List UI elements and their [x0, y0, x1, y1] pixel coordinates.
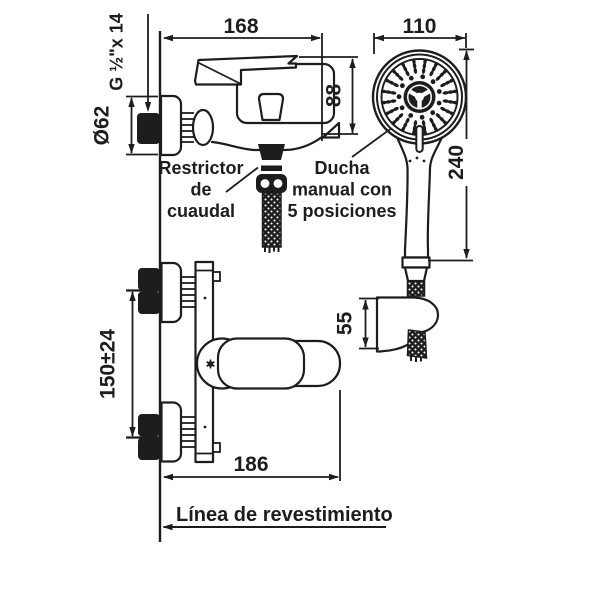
body-tab-top [213, 272, 220, 281]
diverter-knob [259, 94, 283, 120]
dim-110: 110 [374, 15, 466, 54]
dim-110-text: 110 [403, 15, 437, 38]
face-lever-slot [416, 126, 422, 152]
dim-168-text: 168 [223, 15, 258, 38]
connection-bell [193, 110, 213, 145]
mixer-plan-view [138, 262, 340, 462]
center-mode-selector [404, 81, 436, 113]
handle-end-nut [403, 258, 430, 268]
thread-spec-text: G ½"x 14 [107, 13, 127, 91]
restrictor-callout: Restrictor de cuaudal [158, 158, 258, 221]
ducha-line3: 5 posiciones [287, 201, 396, 221]
hose-coupling [408, 281, 425, 296]
dim-150-text: 150±24 [97, 329, 120, 399]
shower-mixer-technical-drawing: 168 110 88 240 Ø62 G ½"x 14 [0, 0, 600, 600]
handle-dot [423, 160, 426, 163]
dim-240-text: 240 [445, 145, 468, 180]
escutcheon-side [161, 96, 181, 155]
dim-88-text: 88 [323, 84, 346, 108]
mixer-side-view [137, 56, 339, 253]
handle-dot [416, 157, 419, 160]
technical-drawing-page: 168 110 88 240 Ø62 G ½"x 14 [0, 0, 600, 600]
shower-handle [396, 135, 443, 258]
cartridge-cap [218, 339, 304, 389]
wall-union-bottom [138, 438, 160, 461]
spout-tip [323, 123, 339, 138]
dim-62-text: Ø62 [91, 106, 114, 146]
wall-union-side [137, 113, 160, 144]
dim-186-text: 186 [233, 453, 268, 476]
wall-line-callout: Línea de revestimiento [163, 504, 393, 530]
restrictor-washer [261, 166, 282, 172]
escutcheon-bottom [162, 403, 182, 462]
wall-union-top [138, 268, 160, 291]
thread-nipple-top [181, 277, 195, 307]
restrictor-line3: cuaudal [167, 201, 235, 221]
escutcheon-top [162, 263, 182, 322]
handle-dot [409, 160, 412, 163]
ducha-line1: Ducha [314, 158, 370, 178]
hand-shower-callout: Ducha manual con 5 posiciones [287, 129, 396, 222]
hose-frayed-end [265, 247, 279, 253]
wall-line-text: Línea de revestimiento [176, 504, 393, 526]
restrictor-line2: de [190, 180, 211, 200]
hose-nut-hole-right [274, 179, 283, 188]
spout-underside-left [212, 142, 260, 150]
handle-cone [405, 268, 427, 282]
ducha-line2: manual con [292, 180, 392, 200]
dim-55-text: 55 [334, 312, 357, 336]
wall-union-bottom [138, 414, 160, 437]
spout-underside-right [284, 137, 322, 150]
wall-union-top [138, 292, 160, 315]
thread-nipple-bottom [181, 417, 195, 447]
outlet-connector [258, 144, 285, 160]
flexible-hose [263, 193, 282, 247]
hose-nut-hole-left [261, 179, 270, 188]
bracket-hose [408, 330, 427, 358]
restrictor-line1: Restrictor [158, 158, 243, 178]
mixer-body [237, 64, 334, 123]
body-tab-bottom [213, 443, 220, 452]
dim-55: 55 [334, 299, 380, 349]
